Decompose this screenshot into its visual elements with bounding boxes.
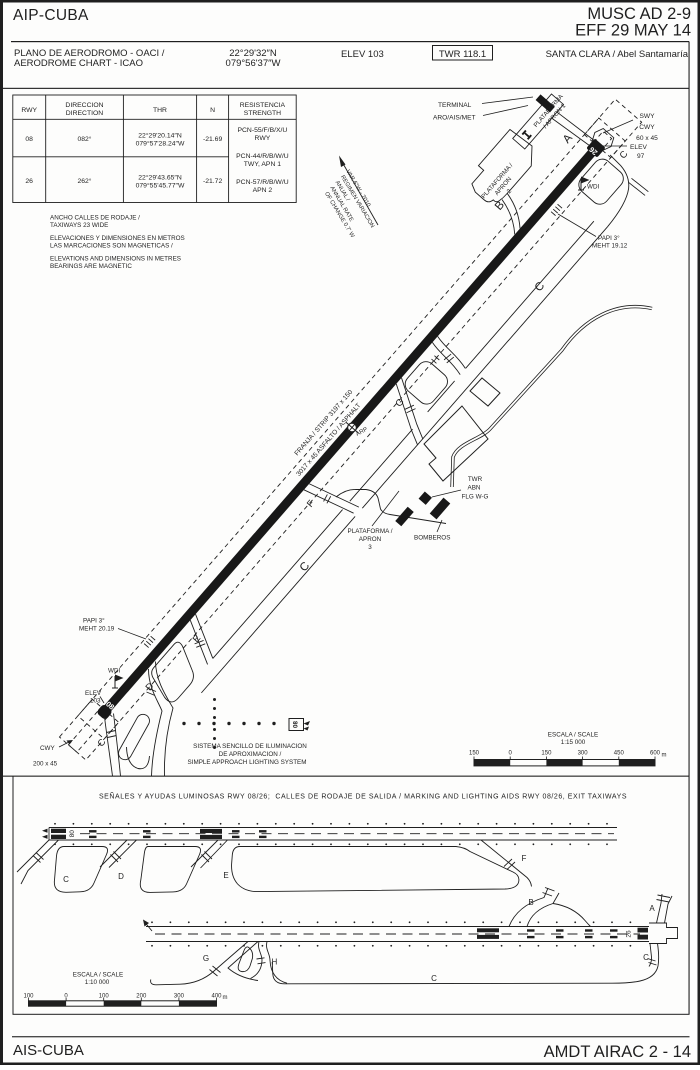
- svg-text:ELEVATIONS AND DIMENSIONS IN M: ELEVATIONS AND DIMENSIONS IN METRES: [50, 256, 181, 263]
- svg-text:E: E: [223, 871, 228, 880]
- svg-text:200 x 45: 200 x 45: [33, 761, 58, 768]
- svg-text:WDI: WDI: [108, 668, 120, 675]
- svg-text:N: N: [210, 107, 215, 114]
- svg-text:1:15 000: 1:15 000: [561, 739, 586, 746]
- svg-text:BEARINGS ARE MAGNETIC: BEARINGS ARE MAGNETIC: [50, 263, 132, 270]
- svg-text:SIMPLE APPROACH LIGHTING SYSTE: SIMPLE APPROACH LIGHTING SYSTEM: [188, 759, 307, 766]
- svg-text:DE APROXIMACION /: DE APROXIMACION /: [219, 751, 282, 758]
- svg-text:DIRECCION: DIRECCION: [65, 102, 103, 109]
- svg-text:B: B: [528, 898, 533, 907]
- svg-text:D: D: [118, 872, 124, 881]
- svg-text:ELEV: ELEV: [85, 690, 102, 697]
- svg-text:PCN-44/R/B/W/U: PCN-44/R/B/W/U: [236, 153, 289, 160]
- svg-text:m: m: [223, 995, 228, 1001]
- svg-text:-21.72: -21.72: [203, 178, 222, 185]
- svg-text:AIS-CUBA: AIS-CUBA: [13, 1042, 84, 1059]
- svg-text:DIRECTION: DIRECTION: [66, 110, 103, 117]
- svg-text:22°29'43.65″N: 22°29'43.65″N: [138, 174, 182, 182]
- svg-text:ELEVACIONES Y DIMENSIONES EN M: ELEVACIONES Y DIMENSIONES EN METROS: [50, 235, 185, 242]
- svg-text:C: C: [431, 974, 437, 983]
- svg-text:26: 26: [626, 930, 633, 938]
- svg-text:MEHT 20.19: MEHT 20.19: [79, 626, 115, 633]
- svg-text:PLATAFORMA /: PLATAFORMA /: [348, 528, 393, 535]
- svg-text:ELEV 103: ELEV 103: [341, 49, 384, 60]
- svg-text:LAS MARCACIONES SON MAGNETICAS: LAS MARCACIONES SON MAGNETICAS /: [50, 243, 173, 250]
- svg-text:AERODROME CHART - ICAO: AERODROME CHART - ICAO: [14, 58, 143, 69]
- svg-text:-21.69: -21.69: [203, 136, 222, 143]
- svg-text:26: 26: [25, 178, 33, 185]
- svg-text:60 x 45: 60 x 45: [636, 135, 658, 142]
- svg-text:079°55'45.77″W: 079°55'45.77″W: [136, 182, 185, 190]
- svg-text:APRON: APRON: [359, 536, 382, 543]
- svg-text:08: 08: [293, 721, 300, 728]
- svg-text:MUSC AD 2-9: MUSC AD 2-9: [587, 5, 691, 23]
- svg-text:22°29'20.14″N: 22°29'20.14″N: [138, 132, 182, 140]
- svg-text:WDI: WDI: [587, 184, 599, 191]
- svg-text:08: 08: [68, 830, 75, 838]
- svg-text:SEÑALES Y AYUDAS LUMINOSAS RWY: SEÑALES Y AYUDAS LUMINOSAS RWY 08/26; CA…: [99, 792, 627, 801]
- svg-text:ESCALA / SCALE: ESCALA / SCALE: [73, 972, 123, 979]
- svg-text:TWY, APN 1: TWY, APN 1: [244, 161, 281, 168]
- svg-text:1:10 000: 1:10 000: [85, 979, 110, 986]
- svg-text:TWR 118.1: TWR 118.1: [439, 49, 486, 60]
- svg-text:RWY: RWY: [255, 135, 271, 142]
- svg-text:600: 600: [650, 751, 661, 757]
- svg-text:FLG W-G: FLG W-G: [462, 494, 489, 501]
- svg-text:082°: 082°: [77, 135, 91, 143]
- svg-text:C: C: [643, 953, 649, 962]
- svg-text:THR: THR: [153, 107, 167, 114]
- svg-text:150: 150: [541, 751, 552, 757]
- svg-text:3: 3: [368, 544, 372, 551]
- svg-text:STRENGTH: STRENGTH: [244, 110, 281, 117]
- svg-text:H: H: [272, 958, 278, 967]
- svg-text:BOMBEROS: BOMBEROS: [414, 535, 450, 542]
- svg-text:AIP-CUBA: AIP-CUBA: [13, 7, 89, 24]
- svg-text:PAPI 3°: PAPI 3°: [598, 234, 620, 242]
- svg-text:RESISTENCIA: RESISTENCIA: [240, 102, 286, 109]
- svg-text:TERMINAL: TERMINAL: [438, 102, 472, 109]
- svg-text:97: 97: [637, 153, 645, 160]
- svg-text:300: 300: [578, 751, 589, 757]
- svg-text:EFF 29 MAY 14: EFF 29 MAY 14: [575, 22, 691, 40]
- svg-text:CWY: CWY: [639, 124, 655, 131]
- svg-text:SANTA CLARA / Abel Santamaría: SANTA CLARA / Abel Santamaría: [546, 49, 689, 60]
- svg-text:SISTEMA SENCILLO DE ILUMINACIO: SISTEMA SENCILLO DE ILUMINACION: [193, 743, 307, 750]
- svg-text:MEHT 19.12: MEHT 19.12: [592, 243, 628, 250]
- svg-text:PCN-55/F/B/X/U: PCN-55/F/B/X/U: [237, 127, 287, 134]
- svg-text:CWY: CWY: [40, 745, 55, 752]
- svg-text:AMDT AIRAC 2 - 14: AMDT AIRAC 2 - 14: [544, 1043, 691, 1061]
- svg-text:ARO/AIS/MET: ARO/AIS/MET: [433, 115, 476, 122]
- svg-text:TWR: TWR: [468, 476, 483, 483]
- svg-text:103: 103: [90, 698, 101, 705]
- svg-text:079°57'28.24″W: 079°57'28.24″W: [136, 140, 185, 148]
- svg-text:ANCHO CALLES DE RODAJE /: ANCHO CALLES DE RODAJE /: [50, 215, 140, 222]
- svg-text:ELEV: ELEV: [630, 144, 647, 151]
- svg-text:A: A: [649, 904, 655, 913]
- svg-text:m: m: [662, 753, 667, 759]
- svg-text:ESCALA / SCALE: ESCALA / SCALE: [548, 732, 598, 739]
- svg-text:079°56'37″W: 079°56'37″W: [226, 58, 281, 69]
- svg-text:PAPI 3°: PAPI 3°: [83, 617, 105, 625]
- svg-text:450: 450: [614, 751, 625, 757]
- svg-text:ABN: ABN: [468, 485, 481, 492]
- svg-text:150: 150: [469, 751, 480, 757]
- svg-text:SWY: SWY: [639, 113, 655, 120]
- svg-text:262°: 262°: [77, 177, 91, 185]
- svg-text:RWY: RWY: [21, 107, 37, 114]
- svg-text:APN 2: APN 2: [253, 187, 273, 194]
- svg-text:08: 08: [25, 136, 33, 143]
- svg-text:TAXIWAYS 23 WIDE: TAXIWAYS 23 WIDE: [50, 222, 108, 229]
- svg-text:G: G: [203, 954, 209, 963]
- svg-text:F: F: [522, 854, 527, 863]
- svg-text:PCN-57/R/B/W/U: PCN-57/R/B/W/U: [236, 179, 289, 186]
- svg-text:C: C: [63, 875, 69, 884]
